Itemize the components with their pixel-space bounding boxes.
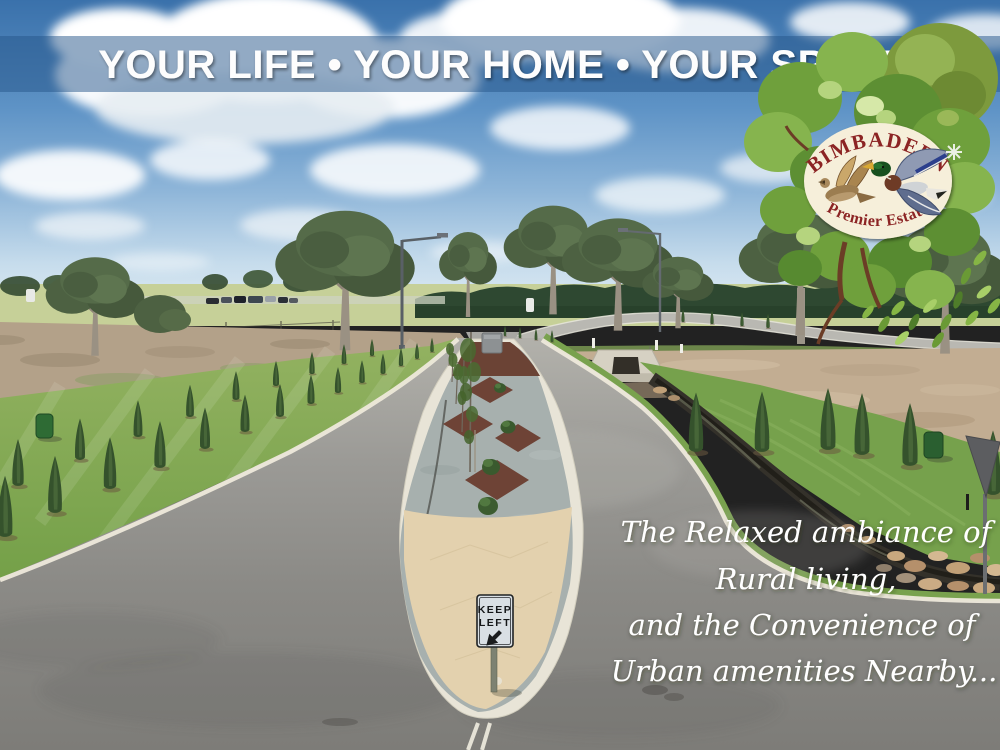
keep-left-line2: LEFT: [479, 617, 511, 629]
sparkle-icon: [946, 144, 962, 160]
sign-post: [491, 645, 497, 692]
estate-poster: KEEP LEFT YOUR LIFE • YOUR HOME • YOUR S…: [0, 0, 1000, 750]
distant-tank: [26, 289, 35, 302]
quote-line-4: Urban amenities Nearby...: [611, 654, 998, 688]
distant-tank-2: [526, 298, 534, 312]
median-cabinet: [482, 333, 502, 353]
quote-line-2: Rural living,: [715, 562, 897, 596]
quote-line-3: and the Convenience of: [629, 608, 981, 642]
keep-left-line1: KEEP: [478, 604, 513, 616]
quote-line-1: The Relaxed ambiance of: [621, 515, 997, 549]
hero-image: KEEP LEFT YOUR LIFE • YOUR HOME • YOUR S…: [0, 0, 1000, 750]
